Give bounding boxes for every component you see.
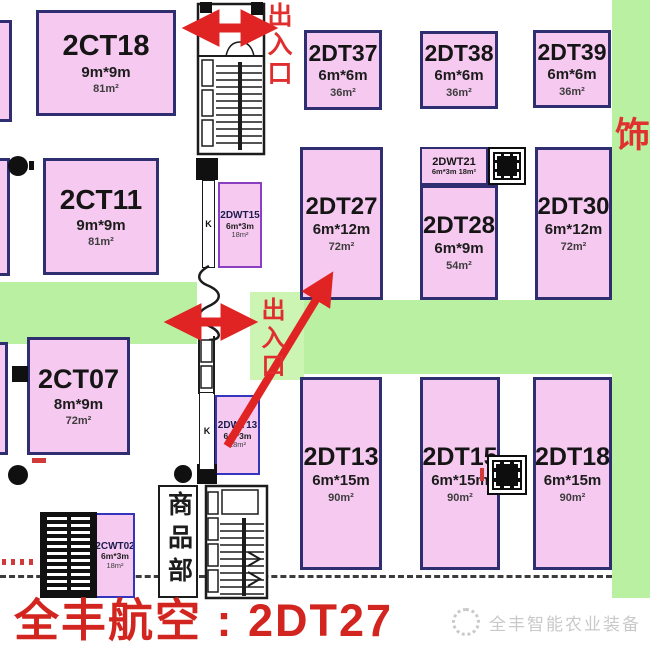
wall-tick	[29, 161, 34, 170]
shop-department-label: 商品部	[166, 491, 191, 596]
booth-layer: 2CT189m*9m81m²2CT119m*9m81m²2CT078m*9m72…	[0, 0, 650, 656]
side-banner-text: 品牌特装饰	[612, 116, 650, 598]
booth-2DWT15: 2DWT156m*3m18m²	[218, 182, 262, 268]
booth-area: 72m²	[66, 415, 92, 427]
booth-area: 36m²	[559, 86, 585, 98]
booth-area: 18m²	[229, 441, 246, 449]
column-dot	[174, 465, 192, 483]
k-label: K	[204, 426, 211, 436]
booth-size: 6m*3m	[432, 167, 457, 176]
shop-department-box: 商品部	[158, 485, 198, 598]
booth-size: 8m*9m	[54, 397, 103, 414]
booth-2DT30: 2DT306m*12m72m²	[535, 147, 612, 300]
booth-fragment	[0, 20, 12, 122]
booth-area: 18m²	[106, 562, 123, 570]
booth-area: 36m²	[330, 87, 356, 99]
booth-area: 72m²	[329, 241, 355, 253]
booth-2DT37: 2DT376m*6m36m²	[304, 30, 382, 110]
wall-block	[12, 366, 28, 382]
booth-id: 2DT13	[303, 443, 378, 471]
booth-size: 6m*12m	[545, 222, 603, 239]
booth-id: 2DT37	[308, 41, 377, 67]
slat-column	[47, 517, 67, 593]
booth-size: 6m*15m	[312, 473, 370, 490]
caption-booth-callout: 全丰航空 : 2DT27	[14, 584, 393, 649]
booth-id: 2CT11	[60, 184, 143, 215]
booth-size: 6m*6m	[318, 68, 367, 85]
booth-2DT13: 2DT136m*15m90m²	[300, 377, 382, 570]
booth-id: 2DWT15	[220, 210, 259, 221]
door-strip-k: K	[199, 392, 215, 470]
booth-id: 2DWT13	[218, 420, 257, 431]
booth-2DT38: 2DT386m*6m36m²	[420, 31, 498, 109]
booth-id: 2CT18	[62, 30, 149, 62]
booth-id: 2DT27	[305, 194, 377, 221]
booth-id: 2DT28	[423, 213, 495, 240]
booth-area: 36m²	[446, 87, 472, 99]
booth-area: 90m²	[560, 492, 586, 504]
booth-2CT07: 2CT078m*9m72m²	[27, 337, 130, 455]
booth-size: 9m*9m	[76, 218, 125, 235]
booth-size: 6m*6m	[547, 67, 596, 84]
small-red-marks	[2, 559, 36, 565]
booth-area: 18m²	[231, 231, 248, 239]
circle-logo-icon	[452, 608, 480, 636]
red-tick	[32, 458, 46, 463]
booth-2CT18: 2CT189m*9m81m²	[36, 10, 176, 116]
pillar-icon	[487, 455, 527, 495]
door-strip-k: K	[202, 180, 215, 268]
booth-area: 81m²	[93, 83, 119, 95]
booth-area: 72m²	[561, 241, 587, 253]
booth-2DWT21: 2DWT216m*3m 18m²	[420, 147, 488, 185]
booth-2DT27: 2DT276m*12m72m²	[300, 147, 383, 300]
red-tick	[480, 468, 484, 481]
booth-area: 90m²	[328, 492, 354, 504]
booth-area: 18m²	[459, 167, 477, 176]
exhibition-floor-plan: 2CT189m*9m81m²2CT119m*9m81m²2CT078m*9m72…	[0, 0, 650, 656]
booth-size: 9m*9m	[81, 65, 130, 82]
booth-size: 6m*12m	[313, 222, 371, 239]
booth-area: 54m²	[446, 260, 472, 272]
watermark-text: 全丰智能农业装备	[489, 610, 641, 635]
booth-id: 2CT07	[38, 364, 119, 394]
entrance-label-top: 出入口	[265, 2, 290, 89]
booth-2DT18: 2DT186m*15m90m²	[533, 377, 612, 570]
k-label: K	[205, 219, 212, 229]
wall-block	[196, 158, 218, 180]
watermark: 全丰智能农业装备	[452, 608, 641, 636]
booth-id: 2DT39	[537, 40, 606, 66]
pillar-icon	[488, 147, 526, 185]
booth-size: 6m*9m	[434, 241, 483, 258]
booth-area: 81m²	[88, 236, 114, 248]
booth-size: 6m*6m	[434, 68, 483, 85]
booth-fragment	[0, 158, 10, 276]
booth-id: 2DT38	[424, 41, 493, 67]
column-dot	[8, 156, 28, 176]
booth-2DT28: 2DT286m*9m54m²	[420, 185, 498, 300]
booth-id: 2DT18	[535, 443, 610, 471]
booth-fragment	[0, 342, 8, 455]
booth-area: 90m²	[447, 492, 473, 504]
booth-2DT39: 2DT396m*6m36m²	[533, 30, 611, 108]
booth-2DWT13: 2DWT136m*3m18m²	[215, 395, 260, 475]
slat-column	[71, 517, 91, 593]
booth-size: 6m*15m	[544, 473, 602, 490]
booth-2CT11: 2CT119m*9m81m²	[43, 158, 159, 275]
booth-id: 2DT30	[537, 194, 609, 221]
entrance-label-middle: 出入口	[258, 297, 282, 381]
column-dot	[8, 465, 28, 485]
